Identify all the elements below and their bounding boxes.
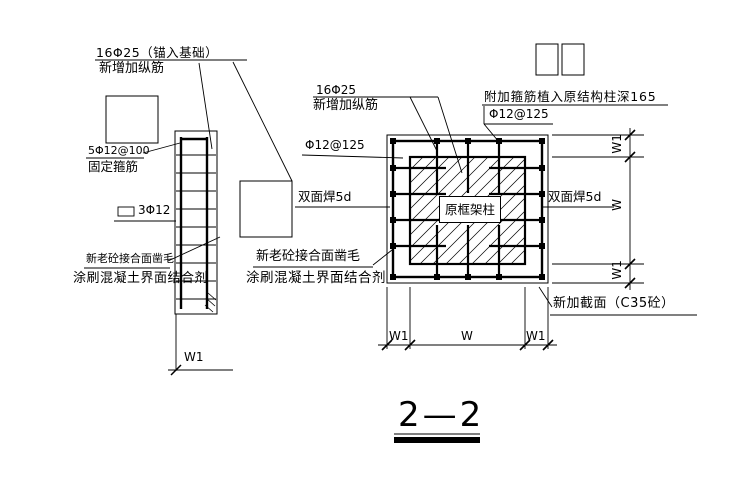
weld-right-label: 双面焊5d: [548, 190, 601, 204]
anchor-bars-desc-label: 新增加纵筋: [99, 62, 164, 77]
fixing-stirrups-spec-label: 5Φ12@100: [88, 145, 150, 158]
left-roughen-line2-label: 涂刷混凝土界面结合剂: [73, 272, 208, 287]
left-roughen-line1-label: 新老砼接合面凿毛: [86, 253, 174, 266]
weld-left-label: 双面焊5d: [298, 190, 351, 204]
bottom-dim-w1-right-label: W1: [526, 330, 546, 344]
title-underline: [394, 434, 480, 443]
original-column-label: 原框架柱: [439, 196, 501, 223]
cad-section-drawing: 16Φ25（锚入基础） 新增加纵筋 5Φ12@100 固定箍筋 3Φ12 新老砼…: [0, 0, 743, 503]
stirrup-spec-right-label: Φ12@125: [489, 108, 549, 122]
tie-bars-label: 3Φ12: [138, 204, 170, 218]
bottom-dim-w-label: W: [461, 330, 473, 344]
added-stirrup-note-label: 附加箍筋植入原结构柱深165: [484, 90, 657, 104]
plan-roughen-line2-label: 涂刷混凝土界面结合剂: [246, 271, 386, 287]
left-elevation-lines: [84, 60, 292, 375]
right-dim-w1-bottom-label: W1: [611, 256, 625, 284]
right-dim-w1-top-label: W1: [611, 130, 625, 158]
plan-roughen-line1-label: 新老砼接合面凿毛: [256, 250, 360, 265]
fixing-stirrups-desc-label: 固定箍筋: [88, 160, 138, 174]
dimension-lines: [378, 128, 644, 350]
new-bars-desc-label: 新增加纵筋: [313, 99, 378, 114]
anchor-bars-spec-label: 16Φ25（锚入基础）: [96, 46, 218, 60]
new-section-label: 新加截面（C35砼）: [553, 297, 675, 312]
right-dim-w-label: W: [611, 193, 625, 217]
new-bars-spec-label: 16Φ25: [316, 84, 356, 98]
bottom-dim-w1-left-label: W1: [389, 330, 409, 344]
left-dim-w1-label: W1: [184, 351, 204, 365]
stirrup-spec-left-label: Φ12@125: [305, 139, 365, 153]
section-title: 2—2: [398, 396, 484, 435]
